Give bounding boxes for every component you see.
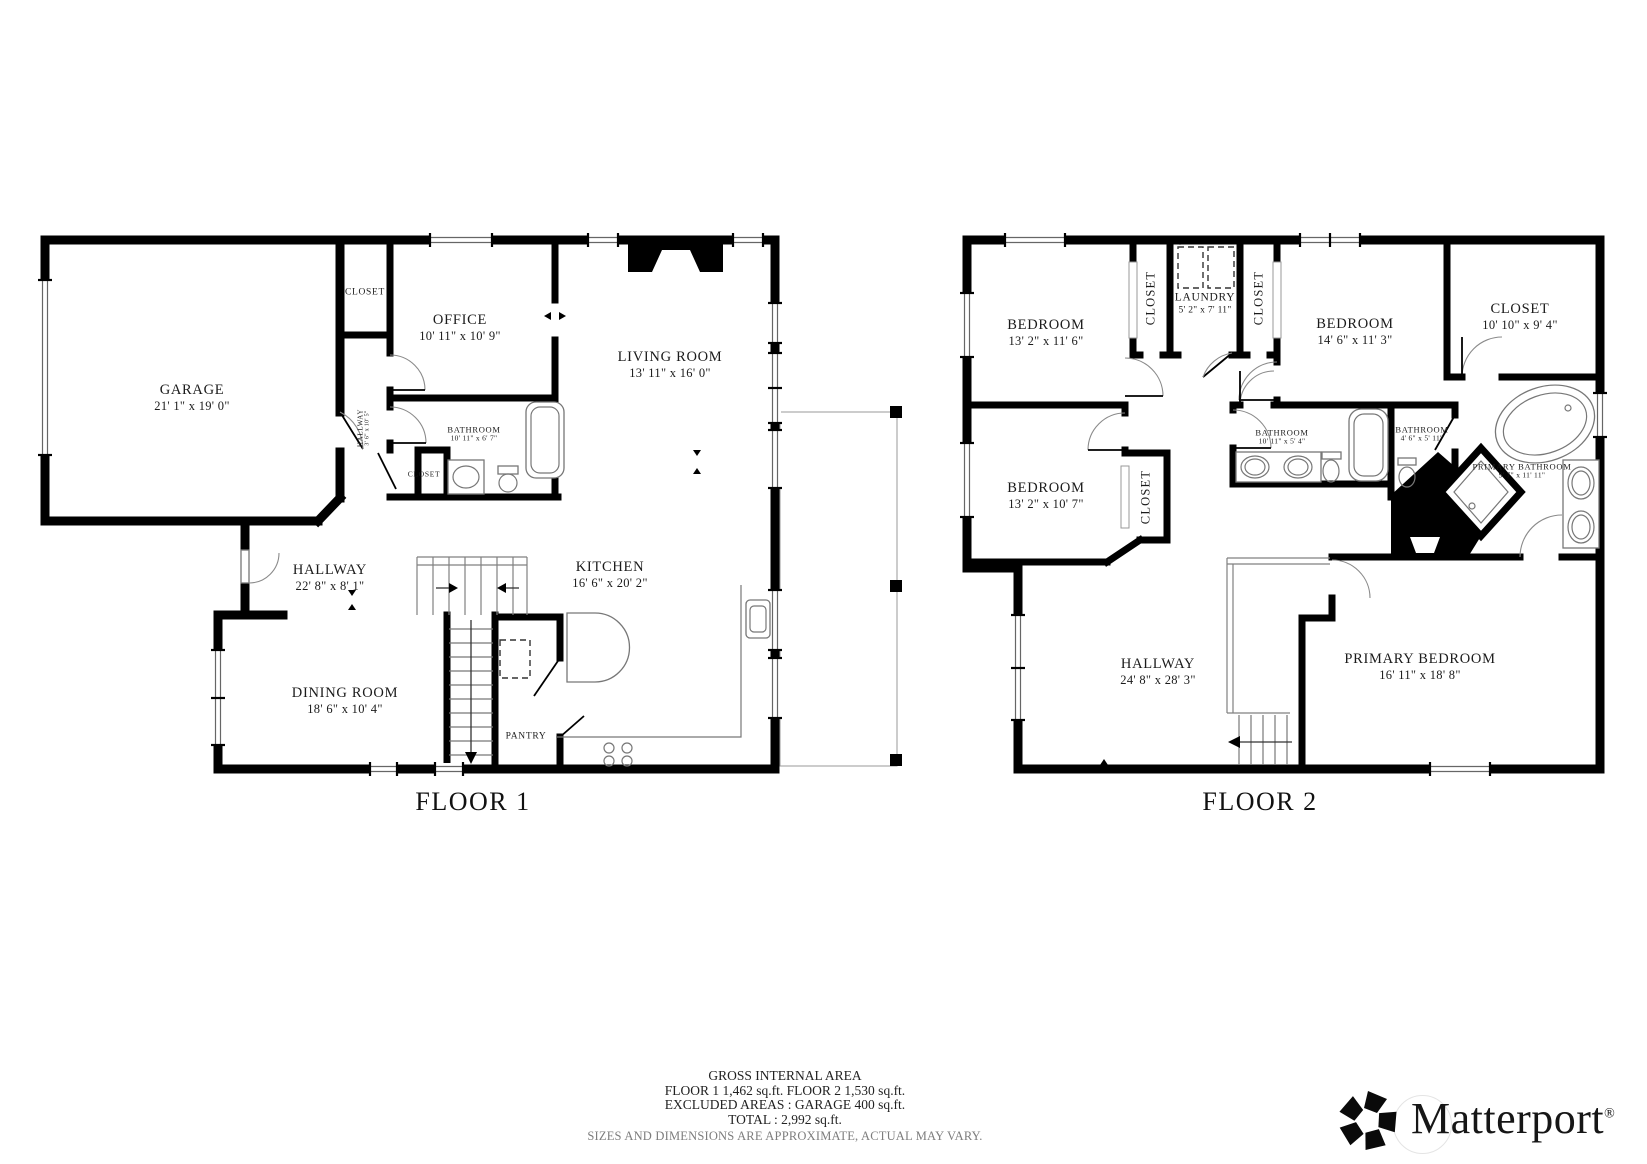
room-label-living-room: LIVING ROOM 13' 11" x 16' 0" bbox=[618, 349, 723, 381]
room-label-garage: GARAGE 21' 1" x 19' 0" bbox=[154, 382, 229, 414]
room-label-bedroom-2: BEDROOM 14' 6" x 11' 3" bbox=[1316, 316, 1393, 348]
room-label-primary-bathroom: PRIMARY BATHROOM 9' 7" x 11' 11" bbox=[1473, 462, 1572, 481]
room-label-office: OFFICE 10' 11" x 10' 9" bbox=[419, 312, 501, 344]
room-label-bedroom-3: BEDROOM 13' 2" x 10' 7" bbox=[1007, 480, 1084, 512]
floor1-title: FLOOR 1 bbox=[415, 787, 530, 817]
matterport-logo-icon bbox=[1336, 1087, 1400, 1155]
room-label-dining-room: DINING ROOM 18' 6" x 10' 4" bbox=[292, 685, 398, 717]
area-summary: GROSS INTERNAL AREA FLOOR 1 1,462 sq.ft.… bbox=[385, 1069, 1185, 1144]
footer-disclaimer: SIZES AND DIMENSIONS ARE APPROXIMATE, AC… bbox=[385, 1129, 1185, 1144]
room-label-kitchen: KITCHEN 16' 6" x 20' 2" bbox=[572, 559, 647, 591]
room-label-hallway-f1: HALLWAY 22' 8" x 8' 1" bbox=[293, 562, 367, 594]
footer-total: TOTAL : 2,992 sq.ft. bbox=[385, 1113, 1185, 1128]
fireplace-primary-bedroom bbox=[1397, 532, 1453, 559]
pantry-shelf bbox=[500, 640, 530, 678]
registered-mark: ® bbox=[1604, 1106, 1615, 1121]
room-label-bathroom-f2-b: BATHROOM 4' 6" x 5' 11" bbox=[1395, 425, 1448, 444]
room-label-hallway-f2: HALLWAY 24' 8" x 28' 3" bbox=[1120, 656, 1195, 688]
room-label-primary-bedroom: PRIMARY BEDROOM 16' 11" x 18' 8" bbox=[1344, 651, 1495, 683]
fireplace-living-room bbox=[628, 236, 723, 272]
room-label-closet-primary: CLOSET 10' 10" x 9' 4" bbox=[1482, 301, 1557, 333]
floor2-title: FLOOR 2 bbox=[1202, 787, 1317, 817]
room-label-hallway-small: HALLWAY 3' 6" x 10' 5" bbox=[356, 409, 371, 447]
room-label-laundry: LAUNDRY 5' 2" x 7' 11" bbox=[1175, 292, 1236, 317]
room-label-bathroom-f1: BATHROOM 10' 11" x 6' 7" bbox=[447, 425, 500, 444]
floor1-kitchen-fixtures bbox=[556, 585, 770, 766]
deck-outline bbox=[780, 406, 902, 766]
footer-excluded: EXCLUDED AREAS : GARAGE 400 sq.ft. bbox=[385, 1098, 1185, 1113]
footer-title: GROSS INTERNAL AREA bbox=[385, 1069, 1185, 1084]
floor1-windows bbox=[38, 233, 782, 776]
footer-areas: FLOOR 1 1,462 sq.ft. FLOOR 2 1,530 sq.ft… bbox=[385, 1084, 1185, 1099]
room-label-closet-f2-b: CLOSET bbox=[1252, 271, 1267, 325]
room-label-closet-small: CLOSET bbox=[408, 471, 441, 480]
floor1-walls bbox=[45, 240, 775, 769]
room-label-bedroom-1: BEDROOM 13' 2" x 11' 6" bbox=[1007, 317, 1084, 349]
room-label-bathroom-f2-a: BATHROOM 10' 11" x 5' 4" bbox=[1255, 428, 1308, 447]
room-label-closet-f2-c: CLOSET bbox=[1139, 470, 1154, 524]
room-label-pantry: PANTRY bbox=[506, 731, 547, 742]
floorplan-page: GARAGE 21' 1" x 19' 0" CLOSET OFFICE 10'… bbox=[0, 0, 1647, 1164]
room-label-closet-1: CLOSET bbox=[345, 287, 385, 298]
matterport-wordmark: Matterport® bbox=[1411, 1093, 1615, 1144]
room-label-closet-f2-a: CLOSET bbox=[1144, 271, 1159, 325]
floor1-bathroom-fixtures bbox=[448, 402, 564, 494]
